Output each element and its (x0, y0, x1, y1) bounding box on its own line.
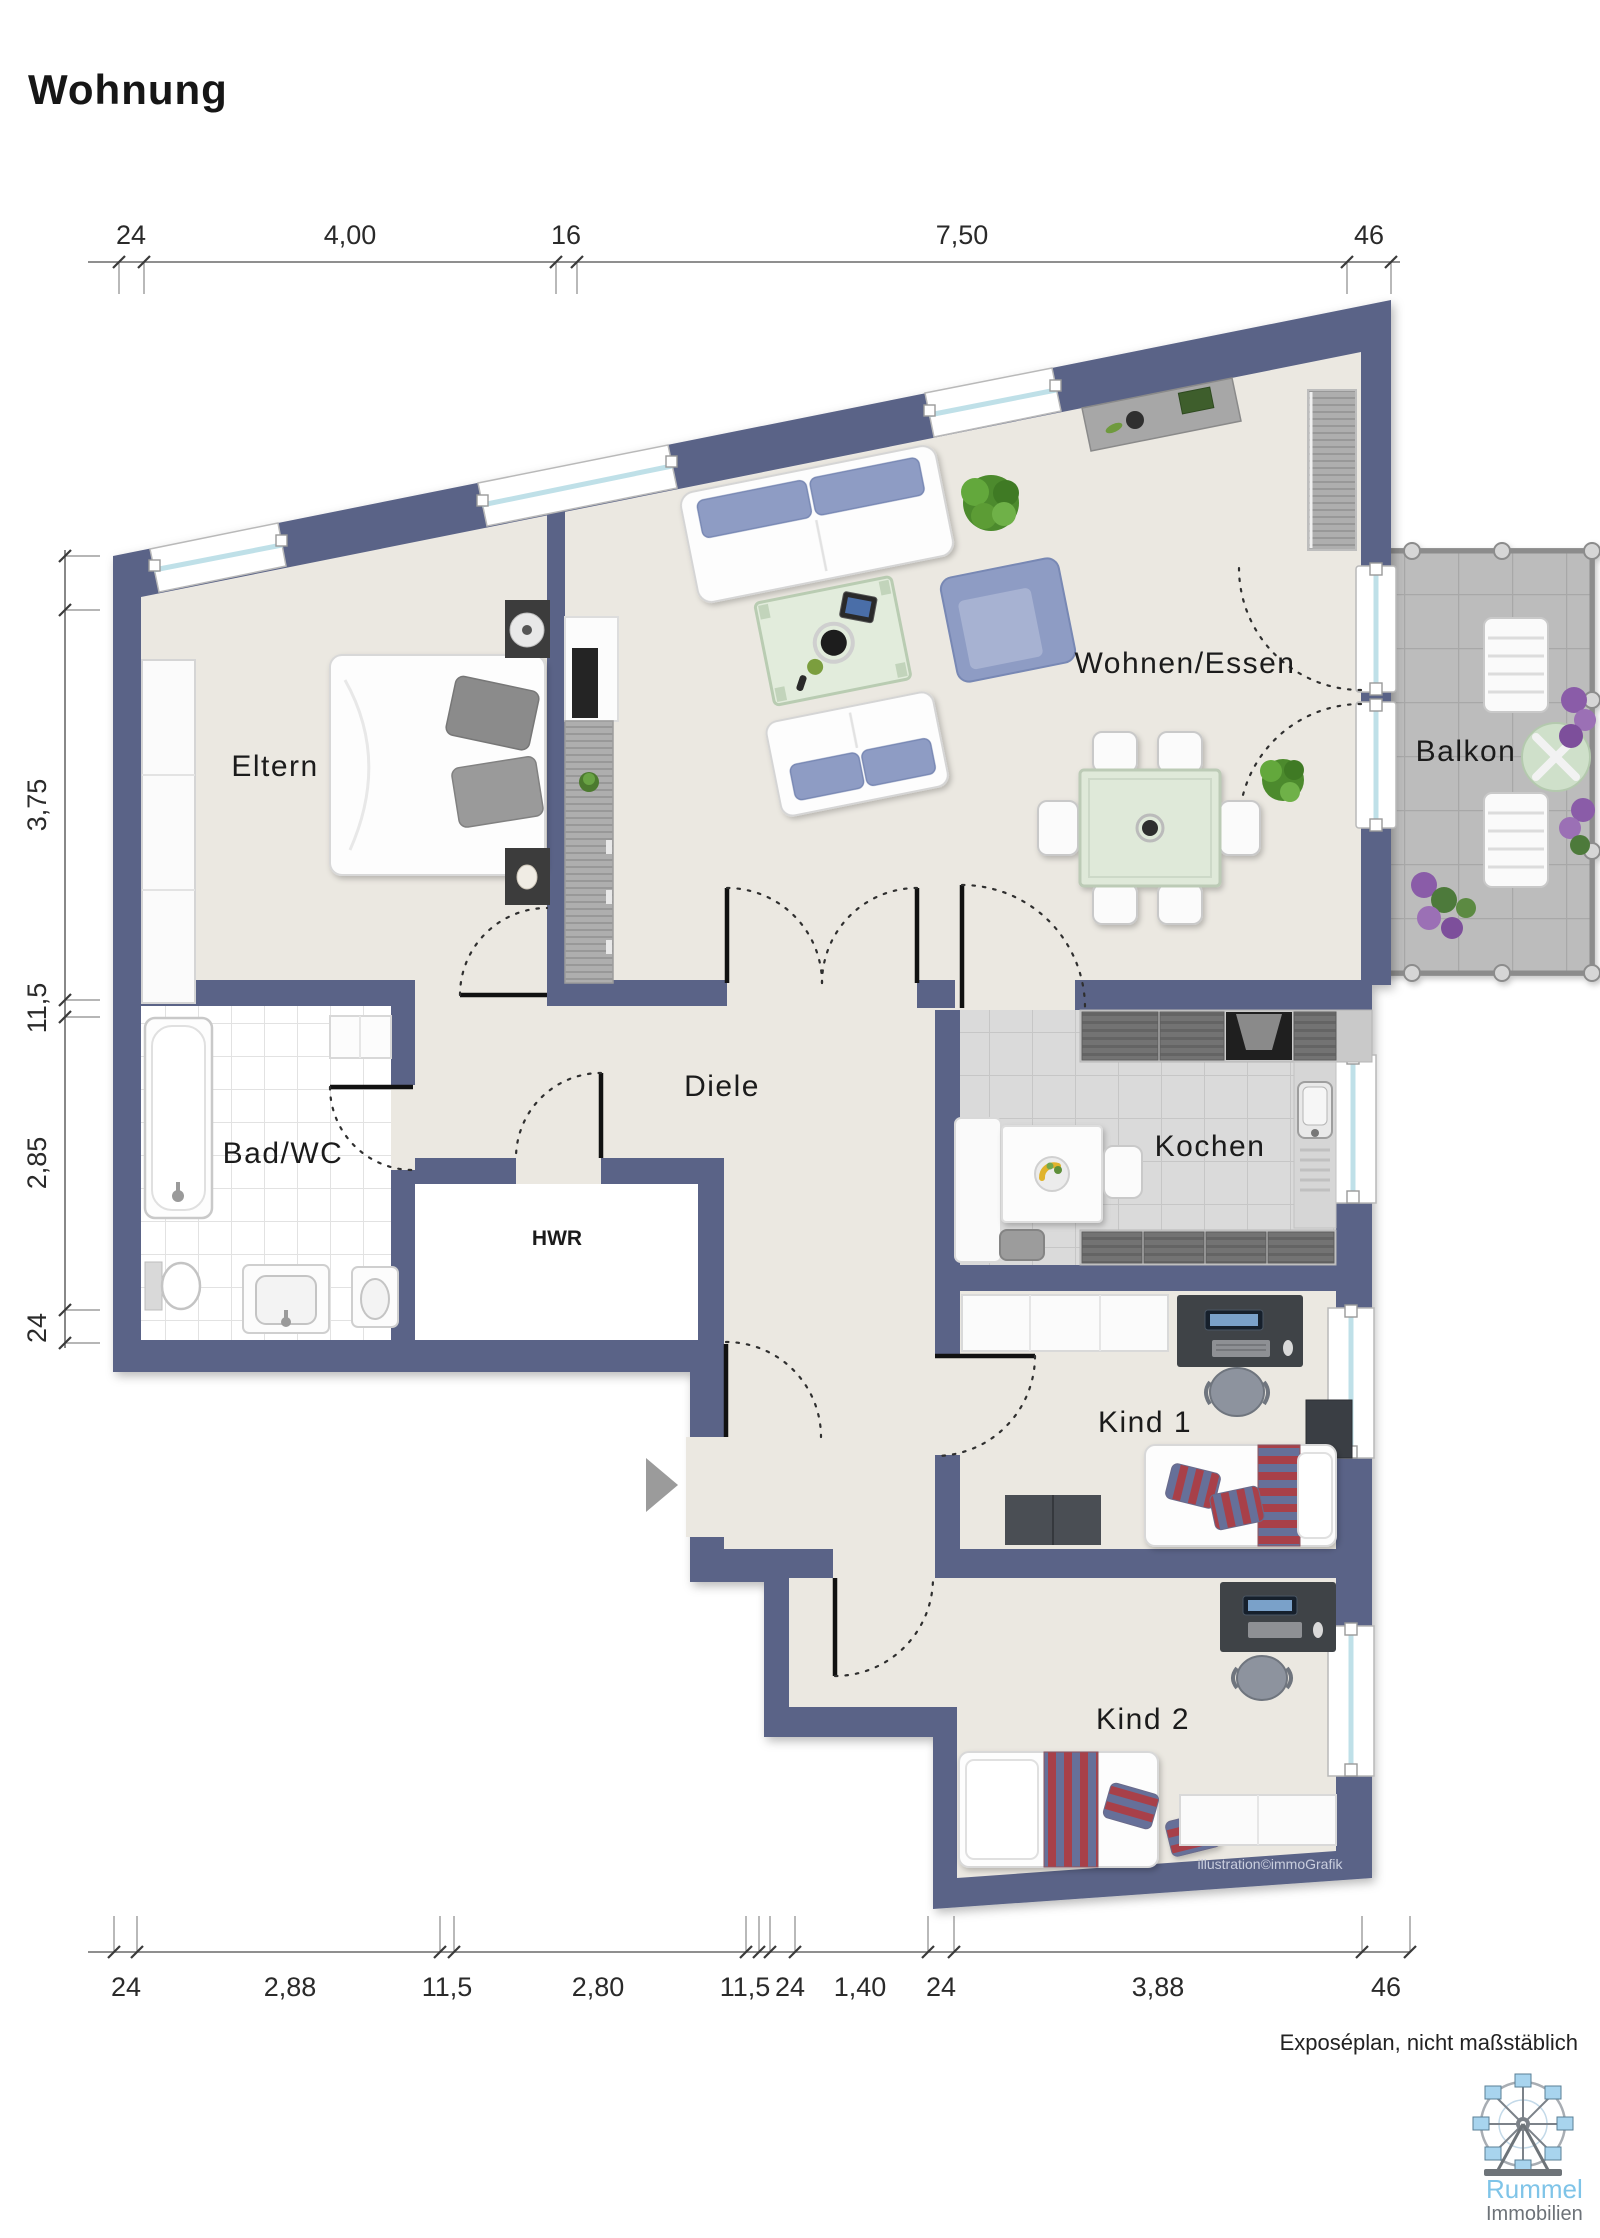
floorplan-canvas: Wohnung (0, 0, 1600, 2238)
dim-left-3: 24 (22, 1313, 52, 1343)
footer-note: Exposéplan, nicht maßstäblich (1280, 2030, 1578, 2055)
dimension-bottom: 24 2,88 11,5 2,80 11,5 24 1,40 24 3,88 4… (88, 1916, 1416, 2002)
dimension-top: 24 4,00 16 7,50 46 (88, 220, 1400, 294)
dim-left-2: 2,85 (22, 1137, 52, 1190)
kitchen-counter-right (1294, 1062, 1336, 1228)
floorplan-page: { "title": "Wohnung", "rooms": { "eltern… (0, 0, 1600, 2238)
plan-title: Wohnung (28, 66, 228, 113)
bathtub (145, 1018, 212, 1218)
tv-wall-unit (565, 617, 618, 983)
sun-lounger-1 (1484, 618, 1548, 712)
kitchen-counter-top (1080, 1010, 1372, 1062)
dim-bottom-1: 2,88 (264, 1972, 317, 2002)
logo-rummel: Rummel Immobilien (1473, 2074, 1583, 2225)
toilet (145, 1262, 200, 1310)
dim-bottom-0: 24 (111, 1972, 141, 2002)
dim-left-1: 11,5 (22, 983, 52, 1034)
label-balkon: Balkon (1416, 735, 1517, 768)
utility-floor (415, 1184, 698, 1340)
dim-bottom-8: 3,88 (1132, 1972, 1185, 2002)
dim-left-0: 3,75 (22, 779, 52, 832)
dim-bottom-2: 11,5 (422, 1972, 473, 2002)
kind2-desk (1220, 1582, 1336, 1652)
kind1-dresser (1005, 1495, 1101, 1545)
dim-top-2: 16 (551, 220, 581, 250)
bath-vanity-shelf (330, 1016, 391, 1058)
sun-lounger-2 (1484, 793, 1548, 887)
ferris-wheel-icon (1473, 2074, 1573, 2176)
eltern-nightstand-top (505, 600, 550, 658)
kind1-bed (1145, 1445, 1336, 1546)
kind2-wardrobe (1180, 1795, 1336, 1845)
bidet (352, 1267, 398, 1327)
dim-bottom-4: 11,5 (720, 1972, 771, 2002)
dim-bottom-3: 2,80 (572, 1972, 625, 2002)
logo-type: Immobilien (1486, 2203, 1583, 2225)
window-kochen (1330, 1052, 1376, 1203)
dim-bottom-9: 46 (1371, 1972, 1401, 2002)
illustration-credit: illustration©immoGrafik (1198, 1856, 1344, 1872)
label-eltern: Eltern (231, 750, 318, 783)
dim-bottom-5: 24 (775, 1972, 805, 2002)
dim-top-4: 46 (1354, 220, 1384, 250)
eltern-nightstand-bottom (505, 848, 550, 905)
label-bad: Bad/WC (223, 1137, 344, 1170)
dim-top-1: 4,00 (324, 220, 377, 250)
logo-name: Rummel (1486, 2174, 1583, 2204)
dim-top-0: 24 (116, 220, 146, 250)
eltern-wardrobe (142, 660, 195, 1003)
label-hwr: HWR (532, 1227, 582, 1250)
label-wohnen: Wohnen/Essen (1075, 647, 1296, 680)
label-kochen: Kochen (1155, 1130, 1266, 1163)
dim-top-3: 7,50 (936, 220, 989, 250)
label-kind2: Kind 2 (1096, 1703, 1190, 1736)
dim-bottom-6: 1,40 (834, 1972, 887, 2002)
kind1-desk (1177, 1295, 1303, 1367)
wardrobe-top-right (1308, 390, 1356, 550)
kind1-cabinet (962, 1295, 1168, 1351)
eltern-bed (330, 655, 545, 875)
dimension-left: 3,75 11,5 2,85 24 (22, 550, 100, 1349)
bath-sink (243, 1265, 329, 1333)
label-kind1: Kind 1 (1098, 1406, 1192, 1439)
dim-bottom-7: 24 (926, 1972, 956, 2002)
entrance-arrow (646, 1458, 678, 1512)
armchair (939, 556, 1077, 683)
kitchen-counter-bottom (1080, 1230, 1336, 1265)
label-diele: Diele (684, 1070, 760, 1103)
